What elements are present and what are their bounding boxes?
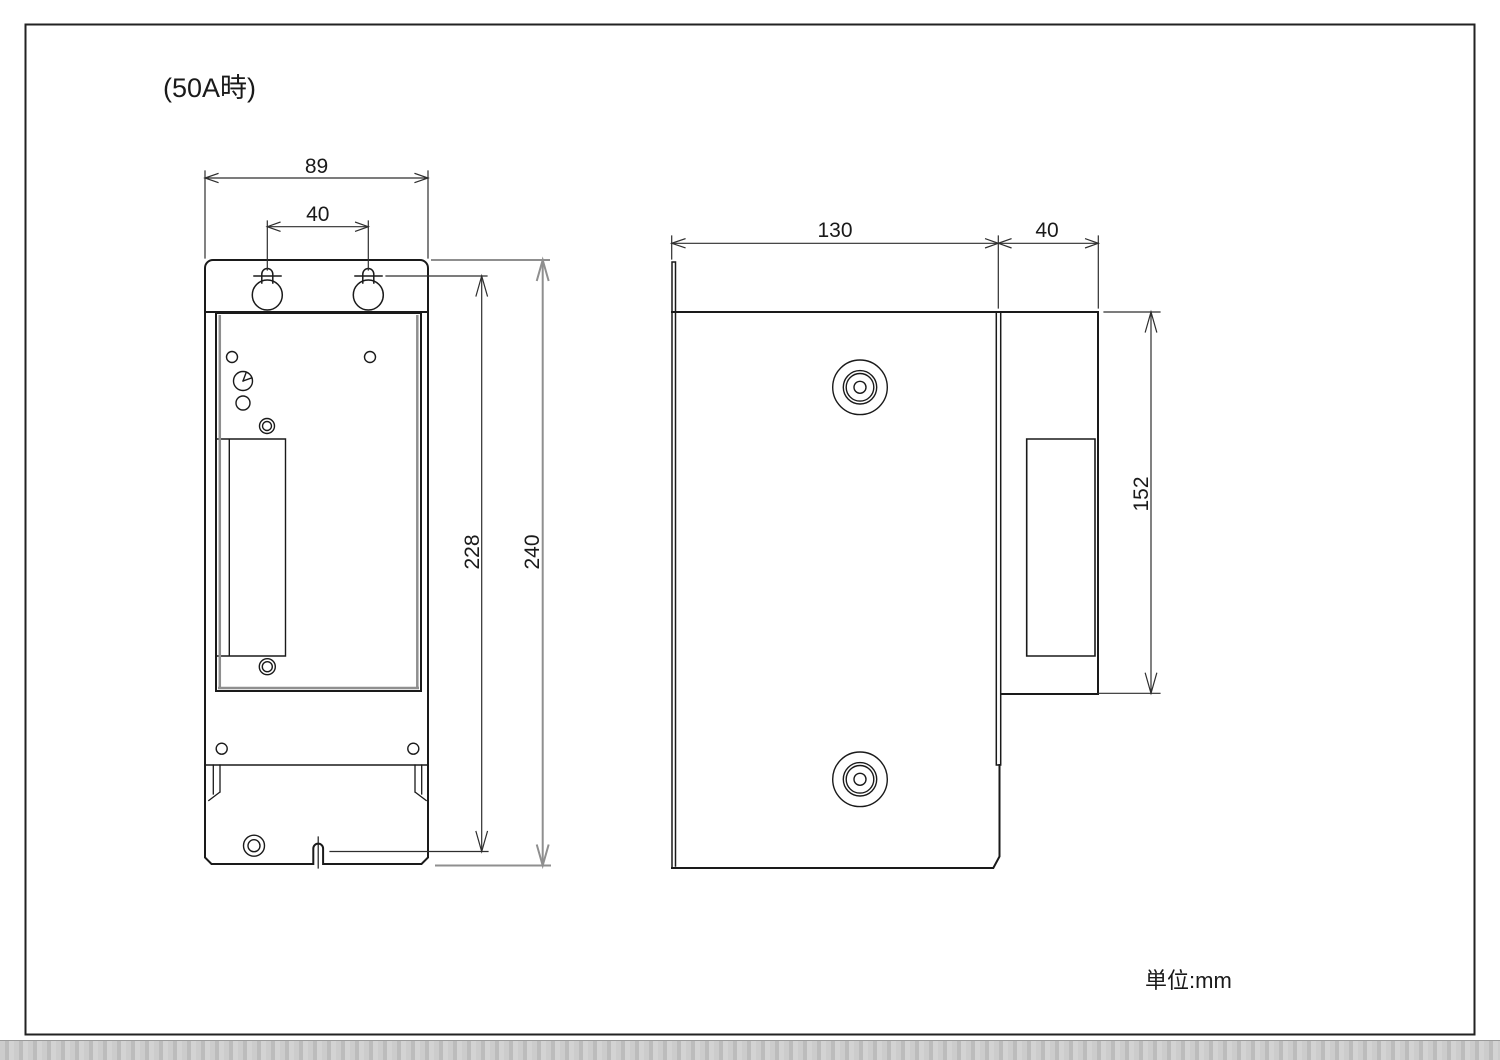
- technical-drawing: (50A時): [0, 0, 1500, 1060]
- round-hole: [236, 396, 250, 410]
- side-view: [672, 262, 1098, 868]
- grommet: [260, 419, 275, 434]
- front-outline: [205, 260, 428, 864]
- drawing-page: (50A時): [0, 0, 1500, 1060]
- screw-hole: [408, 743, 419, 754]
- grommet: [244, 835, 265, 856]
- meter-panel: [216, 313, 421, 691]
- paper-bottom-edge: [0, 1040, 1500, 1060]
- terminal-cutout: [217, 439, 286, 656]
- grommet: [263, 422, 272, 431]
- keyed-hole-notch: [243, 372, 252, 381]
- dim-cover-depth-label: 40: [1035, 219, 1058, 242]
- grommet: [248, 840, 260, 852]
- side-fold-line: [996, 313, 1000, 765]
- cover-outline: [1001, 312, 1098, 694]
- boss-bottom: [833, 752, 888, 807]
- dim-keyhole-pitch-label: 40: [306, 203, 329, 226]
- page-title: (50A時): [163, 73, 256, 103]
- dim-228-label: 228: [461, 534, 484, 569]
- back-plate-edge: [672, 262, 676, 868]
- side-dimensions: [672, 236, 1160, 693]
- front-dimensions: [205, 171, 488, 852]
- dim-depths: [672, 236, 1099, 308]
- page-border: [26, 25, 1475, 1035]
- dim-cover-height-label: 152: [1130, 476, 1153, 511]
- grommet: [262, 662, 272, 672]
- front-panel-thickness-lines: [218, 315, 419, 689]
- dim-240-label: 240: [521, 534, 544, 569]
- dim-keyhole-pitch: [267, 221, 368, 270]
- screw-hole: [227, 352, 238, 363]
- keyhole-right: [353, 269, 383, 311]
- keyhole-left: [252, 269, 282, 311]
- bottom-flanges: [209, 765, 426, 801]
- dim-body-depth-label: 130: [817, 219, 852, 242]
- front-view: [205, 260, 428, 868]
- side-body-bottom: [672, 765, 1000, 868]
- screw-hole: [216, 743, 227, 754]
- dimension-labels: 89 40 228 240 130 40 152: [305, 155, 1153, 570]
- unit-note: 単位:mm: [1145, 968, 1232, 993]
- panel-details: [216, 352, 419, 755]
- boss-top: [833, 360, 888, 415]
- cover-window: [1027, 439, 1095, 656]
- dim-front-width-label: 89: [305, 155, 328, 178]
- screw-hole: [365, 352, 376, 363]
